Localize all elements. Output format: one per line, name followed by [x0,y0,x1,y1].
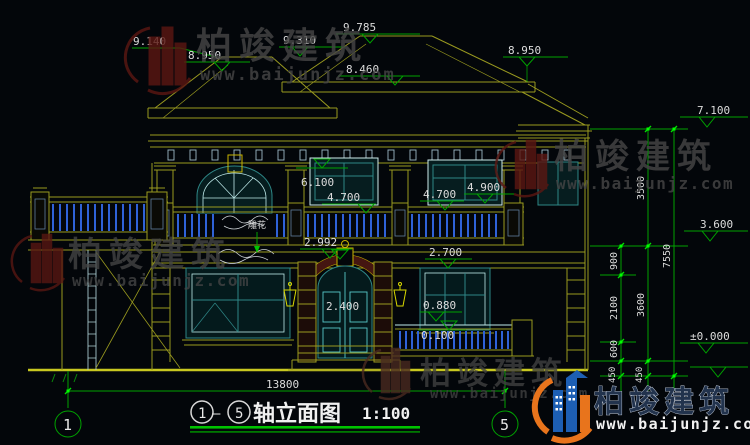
watermark-top-brand: 柏竣建筑 [196,25,368,66]
marker-3600 [684,231,748,241]
title-axis-to: 5 [235,406,243,422]
title-axis-separator: — [212,406,221,422]
elev-second-floor: 3.600 [700,218,733,231]
elev-balcony-right: 4.700 [423,188,456,201]
elev-window2f-top: 6.100 [301,176,334,189]
title-scale: 1:100 [362,404,410,423]
dim-450-a: 450 [608,367,618,383]
dim-2100: 2100 [609,296,620,320]
elevation-drawing-canvas: 9.140 8.950 9.310 9.785 8.460 8.950 7.10… [0,0,750,445]
watermark-right: 柏竣建筑 www.baijunjz.com [496,137,734,196]
elev-window-sill: 0.880 [423,299,456,312]
dim-450-b: 450 [635,367,645,383]
watermark-color-brand: 柏竣建筑 [594,385,734,419]
title-underline-top [190,426,420,429]
watermark-left-url: www.baijunjz.com [72,271,250,290]
elev-window1f-top: 2.700 [429,246,462,259]
balusters-pergola [53,204,144,231]
watermark-color-url: www.baijunjz.com [596,415,750,433]
wall-lamp-right [394,283,406,307]
dim-bottom-total: 13800 [266,378,299,391]
axis-number-1: 1 [63,416,72,434]
building-linework [28,36,592,382]
watermark-left: 柏竣建筑 www.baijunjz.com [12,235,250,290]
watermark-right-brand: 柏竣建筑 [554,137,718,176]
marker-8950R [503,57,568,82]
title-block: 1 — 5 轴立面图 1:100 [190,401,420,433]
watermark-bottom-url: www.baijunjz.com [430,386,589,402]
elev-porch: 0.100 [421,329,454,342]
elev-balcony-left: 4.700 [327,191,360,204]
elev-parapet-right: 4.900 [467,181,500,194]
watermark-top: 柏竣建筑 www.baijunjz.com [125,25,395,94]
roof-right-wing [516,84,592,370]
title-name: 轴立面图 [253,401,341,426]
marker-minus450 [690,367,748,377]
cad-elevation-screenshot: 9.140 8.950 9.310 9.785 8.460 8.950 7.10… [0,0,750,445]
watermark-top-url: www.baijunjz.com [200,65,396,85]
axis-number-5: 5 [500,416,509,434]
watermark-left-brand: 柏竣建筑 [68,235,232,274]
carving-label: 雕花 [248,219,266,230]
elev-slab: 2.992 [304,236,337,249]
carving-leader [254,232,260,253]
porch-railing [392,320,534,356]
marker-7100 [680,117,748,127]
elev-ground: ±0.000 [690,330,730,343]
watermark-right-url: www.baijunjz.com [556,174,734,193]
dim-7550: 7550 [662,244,673,268]
dim-3600: 3600 [636,293,647,317]
elev-roof-right-eave: 8.950 [508,44,541,57]
title-axis-from: 1 [198,406,206,422]
elev-right-wing: 7.100 [697,104,730,117]
dim-600: 600 [609,340,620,358]
window-2f-arched [197,155,272,213]
dim-900: 900 [609,252,620,270]
marker-0000 [680,343,748,353]
watermark-left-logo-icon [12,235,64,290]
elev-door-height: 2.400 [326,300,359,313]
title-underline-bottom [190,431,420,433]
